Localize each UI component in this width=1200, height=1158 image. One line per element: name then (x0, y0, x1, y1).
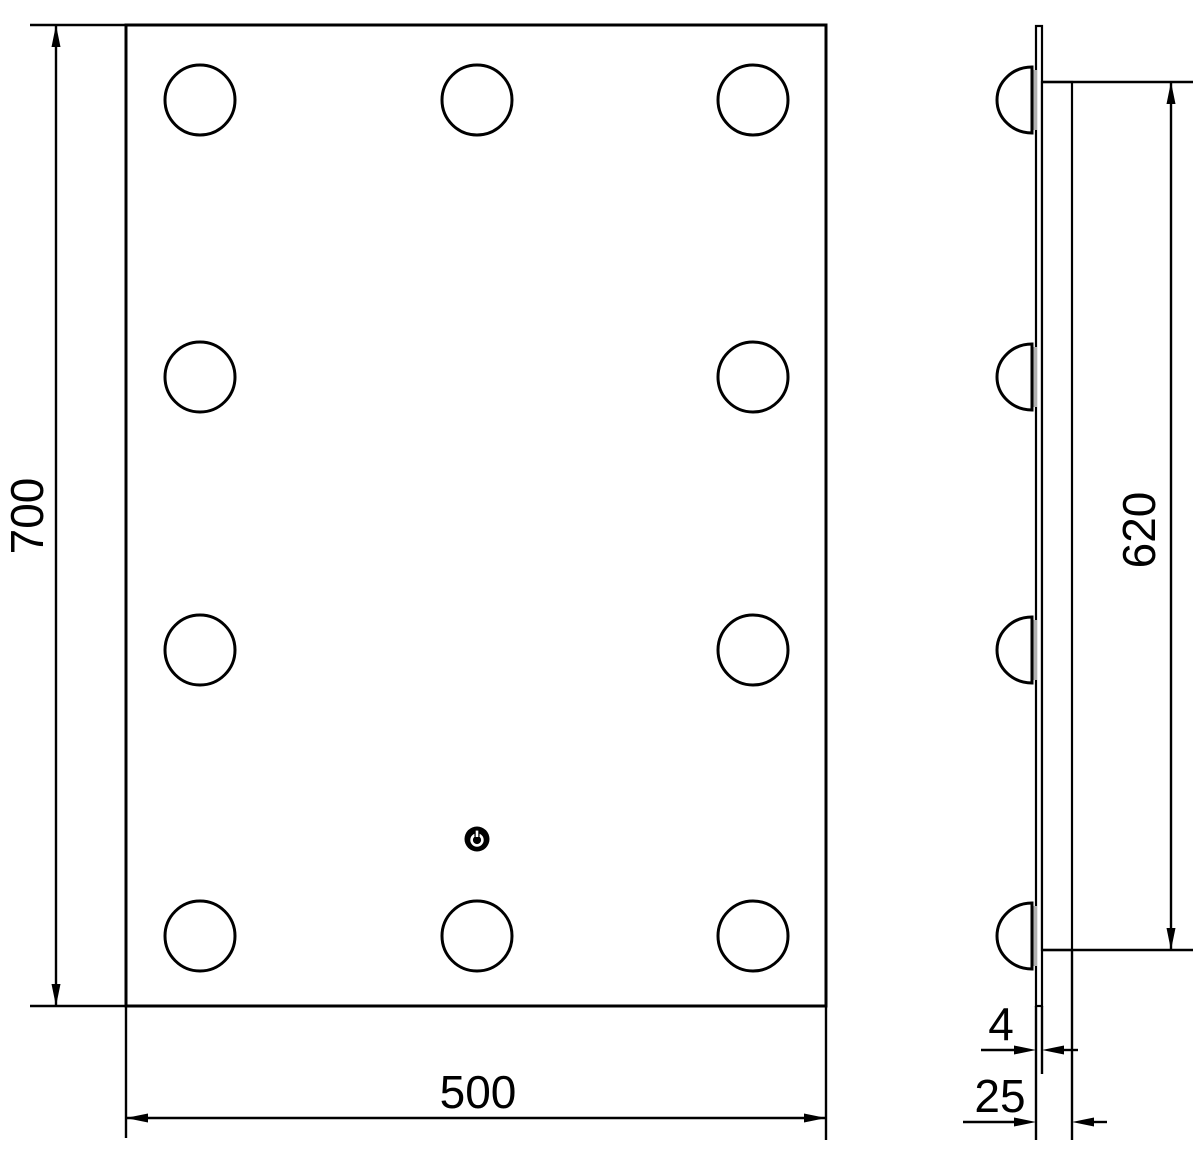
mirror-front-view (126, 25, 826, 1006)
led-bulb-circle (718, 615, 788, 685)
arrowhead-right (804, 1114, 826, 1123)
mirror-dimension-diagram: 700 500 620 (0, 0, 1200, 1158)
arrowhead-up (52, 25, 61, 47)
dimension-label-depth: 25 (974, 1070, 1025, 1122)
led-bulb-circle (718, 342, 788, 412)
dimension-label-height: 700 (1, 478, 53, 555)
technical-drawing: 700 500 620 (0, 0, 1200, 1158)
power-touch-sensor-icon (465, 827, 490, 852)
led-bulb-side (997, 344, 1032, 410)
back-frame-profile (1042, 82, 1072, 950)
dimension-height-700: 700 (1, 25, 126, 1006)
led-bulb-circle (442, 65, 512, 135)
sensor-disc (465, 827, 490, 852)
led-bulb-side (997, 617, 1032, 683)
led-bulb-circle (165, 901, 235, 971)
arrowhead-right (1014, 1046, 1036, 1055)
arrowhead-down (52, 984, 61, 1006)
dimension-label-thickness: 4 (988, 998, 1014, 1050)
dimension-width-500: 500 (126, 1006, 826, 1140)
arrowhead-left (1072, 1118, 1094, 1127)
arrowhead-left (1042, 1046, 1064, 1055)
sensor-tick (476, 831, 479, 837)
led-bulb-circle (718, 65, 788, 135)
led-bulb-side (997, 67, 1032, 133)
arrowhead-up (1167, 82, 1176, 104)
led-bulb-side (997, 903, 1032, 969)
arrowhead-left (126, 1114, 148, 1123)
arrowhead-down (1167, 928, 1176, 950)
led-bulb-circle (165, 615, 235, 685)
dimension-label-width: 500 (440, 1066, 517, 1118)
mirror-side-view (997, 26, 1072, 1006)
dimension-glass-thickness-4: 4 (981, 998, 1078, 1074)
led-bulb-circle (165, 65, 235, 135)
led-bulb-circle (718, 901, 788, 971)
mirror-outline (126, 25, 826, 1006)
led-bulb-circle (165, 342, 235, 412)
dimension-label-led-span: 620 (1113, 492, 1165, 569)
led-bulb-circle (442, 901, 512, 971)
